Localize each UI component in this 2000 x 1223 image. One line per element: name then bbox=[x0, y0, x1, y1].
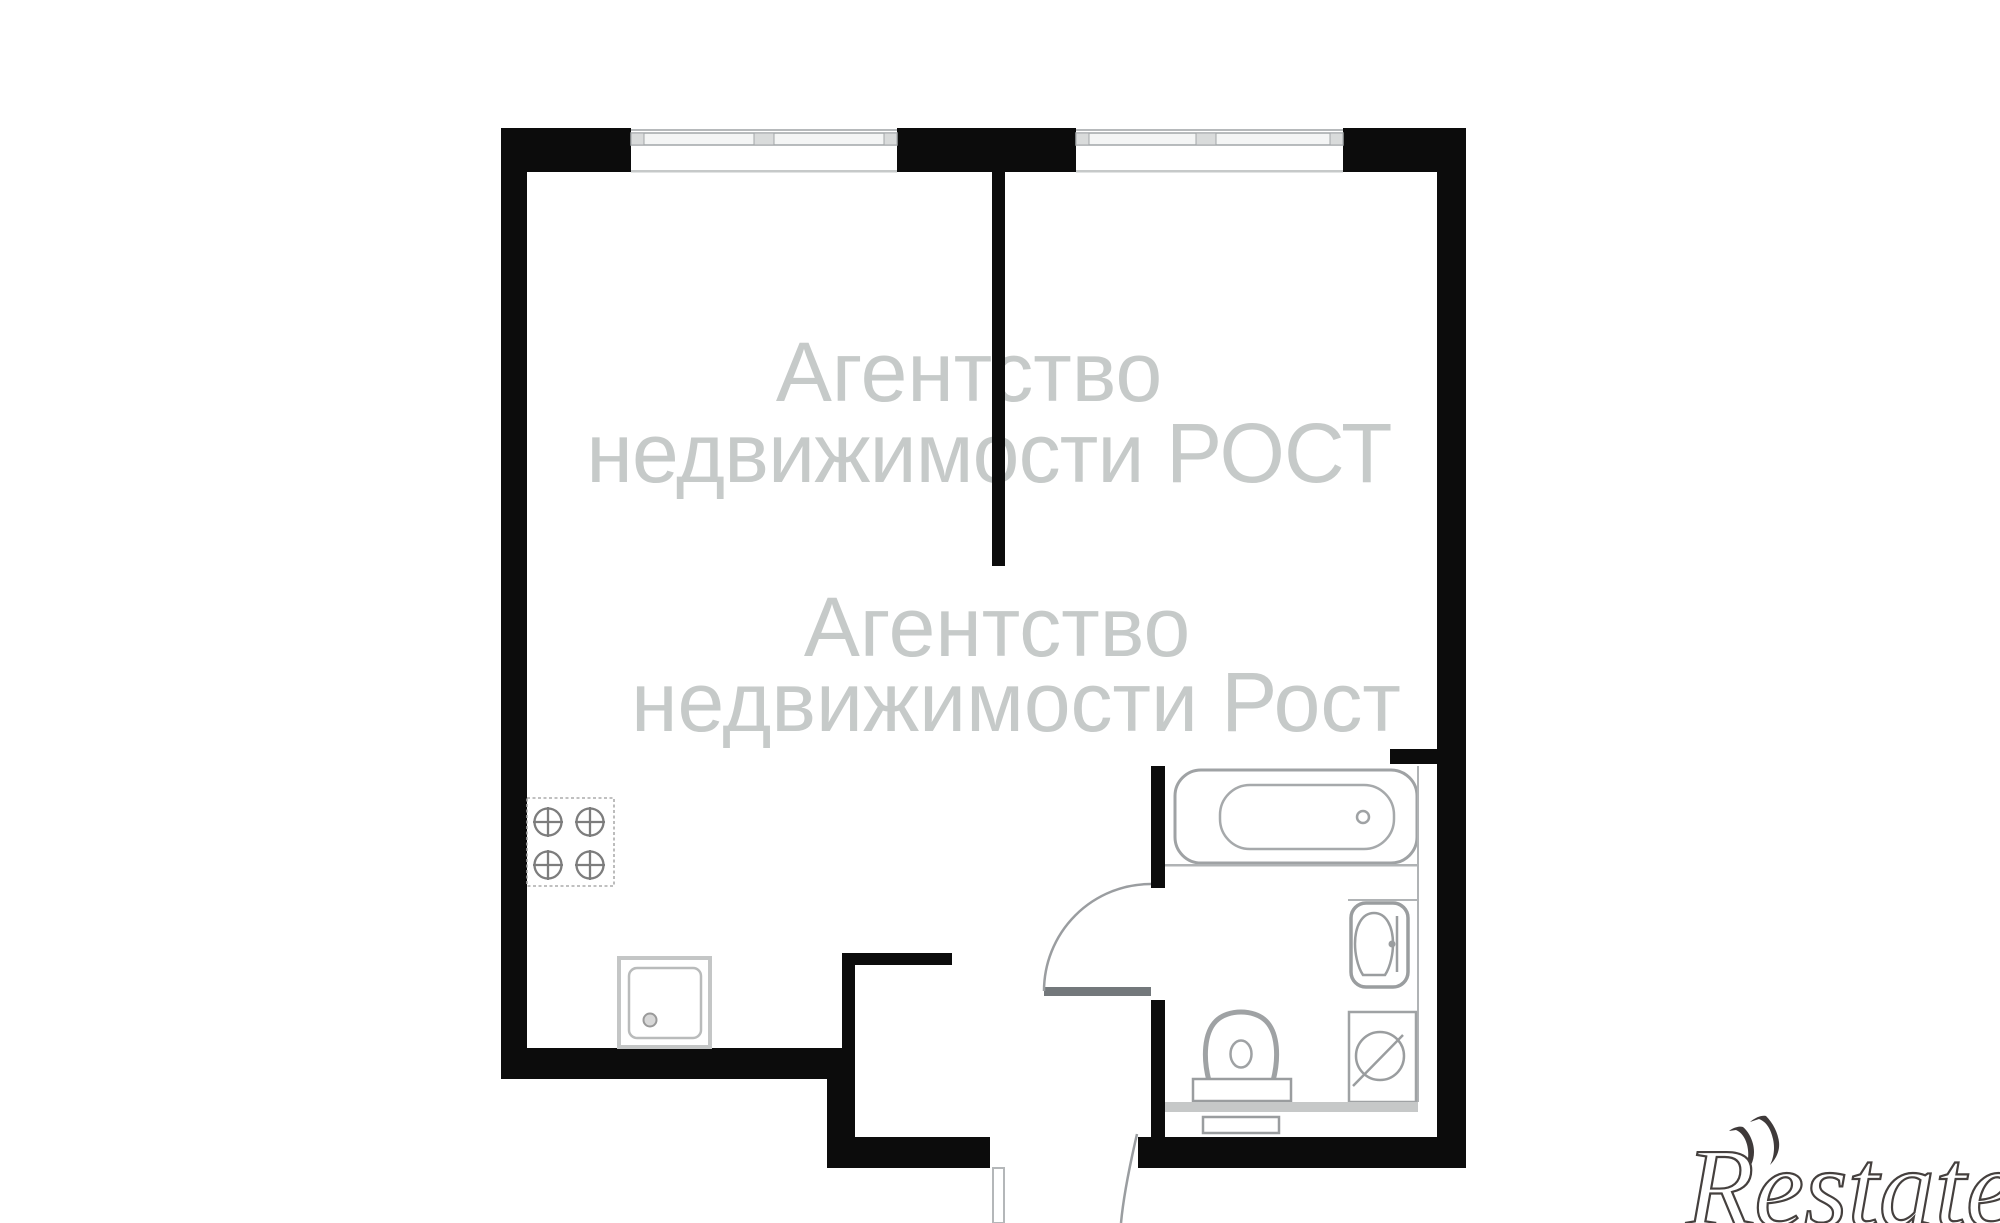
svg-text:недвижимости РОСТ: недвижимости РОСТ bbox=[586, 406, 1391, 500]
svg-text:Агентство: Агентство bbox=[776, 325, 1162, 419]
svg-text:Restate: Restate bbox=[1685, 1127, 2000, 1223]
svg-text:недвижимости Рост: недвижимости Рост bbox=[631, 655, 1401, 749]
